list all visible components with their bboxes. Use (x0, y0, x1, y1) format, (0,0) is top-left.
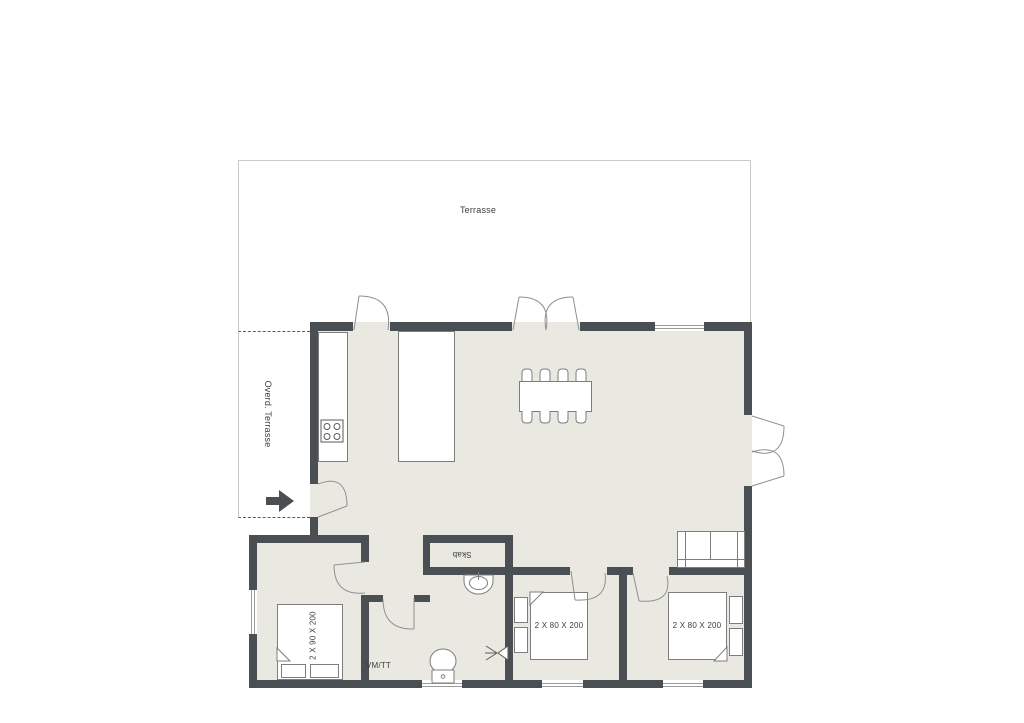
terrace-door-opening (353, 322, 390, 331)
wall-segment (704, 322, 752, 331)
bedside-table (514, 597, 528, 623)
bed-size-label-right: 2 X 80 X 200 (667, 621, 727, 630)
wall-segment (744, 331, 752, 415)
kitchen-counter (318, 332, 348, 462)
wall-segment (369, 595, 383, 602)
sofa-cushion-line (710, 531, 711, 560)
bedside-table (729, 628, 743, 656)
wall-segment (580, 322, 655, 331)
terrace-label: Terrasse (428, 205, 528, 215)
sofa-backrest-line (677, 559, 745, 560)
closet-label: Skab (437, 550, 487, 559)
covered-terrace-label: Overd. Terrasse (263, 369, 273, 459)
door-swing-side-lower (752, 450, 784, 486)
window-bathroom (422, 680, 462, 688)
bedside-table (729, 596, 743, 624)
terrace-area (238, 160, 751, 331)
wall-segment (361, 535, 369, 562)
wall-segment (619, 567, 627, 688)
wall-segment (414, 595, 430, 602)
wall-segment (703, 680, 752, 688)
wall-segment (310, 331, 318, 484)
wall-segment (744, 486, 752, 688)
side-door-opening (744, 415, 752, 486)
bed-size-label-left: 2 X 90 X 200 (309, 587, 318, 685)
window-middle-bedroom (542, 680, 583, 688)
window-right-bedroom (663, 680, 703, 688)
door-swing-side-upper (752, 416, 784, 453)
wall-segment (249, 535, 257, 590)
wall-segment (423, 567, 570, 575)
wall-segment (462, 680, 542, 688)
kitchen-island (398, 331, 455, 462)
wall-segment (505, 535, 513, 688)
bed-size-label-middle: 2 X 80 X 200 (529, 621, 589, 630)
entrance-door-opening (310, 484, 318, 517)
french-door-opening (512, 322, 580, 331)
wall-segment (249, 680, 422, 688)
sofa-armrest-line (685, 531, 686, 568)
wall-segment (361, 595, 369, 688)
wall-segment (430, 535, 513, 543)
wall-segment (669, 567, 745, 575)
dining-table (519, 381, 592, 412)
wall-segment (249, 535, 368, 543)
sofa-armrest-line (737, 531, 738, 568)
covered-terrace-area (238, 331, 310, 518)
window-left-bedroom (249, 590, 257, 634)
pillow (281, 664, 306, 678)
wall-segment (390, 322, 512, 331)
window-top (655, 322, 704, 331)
washer-dryer-label: VM/TT (366, 661, 406, 670)
floor-plan: Terrasse Overd. Terrasse Skab VM/TT 2 X … (0, 0, 1024, 723)
wall-segment (310, 322, 353, 331)
sofa (677, 531, 745, 568)
bedside-table (514, 627, 528, 653)
